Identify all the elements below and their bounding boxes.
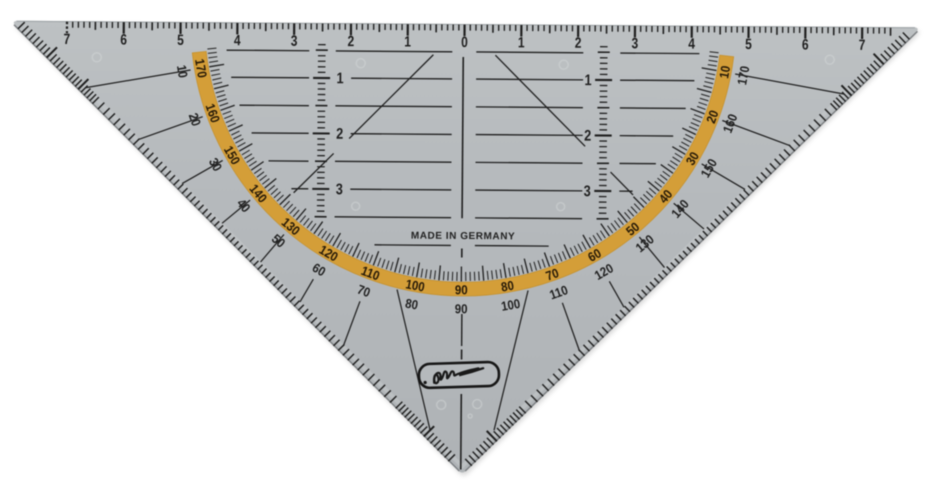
svg-text:4: 4 [234, 32, 241, 49]
svg-text:1: 1 [337, 70, 344, 88]
svg-text:3: 3 [584, 183, 591, 201]
svg-text:7: 7 [63, 31, 70, 48]
svg-text:6: 6 [802, 36, 809, 53]
svg-text:5: 5 [745, 36, 752, 53]
svg-text:2: 2 [575, 35, 582, 52]
svg-text:2: 2 [584, 127, 591, 145]
svg-text:10: 10 [174, 64, 191, 79]
svg-text:1: 1 [404, 33, 411, 50]
svg-text:1: 1 [584, 72, 591, 90]
svg-text:90: 90 [455, 283, 468, 298]
svg-text:0: 0 [461, 34, 468, 51]
svg-text:3: 3 [291, 32, 298, 49]
svg-text:2: 2 [347, 33, 354, 50]
svg-text:3: 3 [336, 181, 343, 199]
svg-text:2: 2 [336, 126, 343, 144]
svg-text:100: 100 [500, 296, 521, 314]
svg-text:MADE IN GERMANY: MADE IN GERMANY [411, 231, 515, 243]
svg-text:5: 5 [177, 32, 184, 49]
svg-text:4: 4 [688, 35, 695, 52]
svg-text:80: 80 [500, 278, 515, 295]
svg-text:3: 3 [631, 35, 638, 52]
svg-text:170: 170 [192, 58, 210, 79]
svg-text:1: 1 [518, 34, 525, 51]
svg-text:90: 90 [455, 302, 468, 317]
svg-text:7: 7 [859, 37, 866, 54]
svg-text:6: 6 [120, 31, 127, 48]
